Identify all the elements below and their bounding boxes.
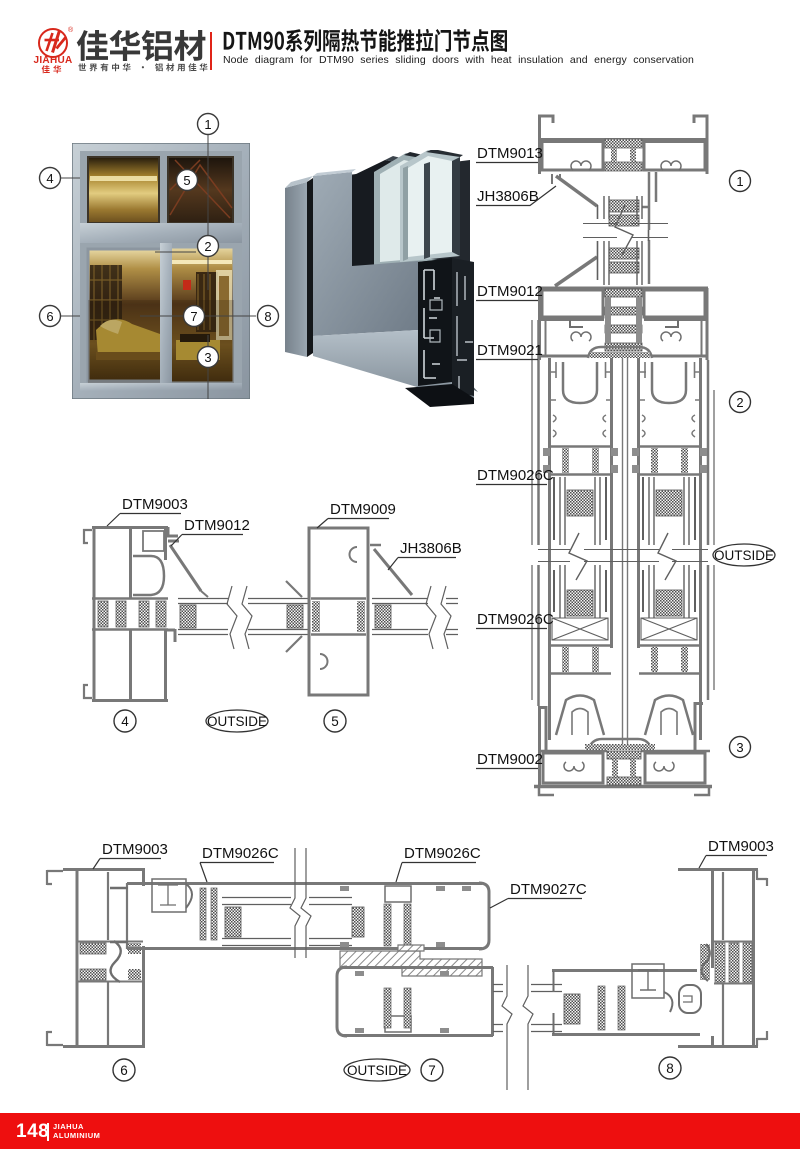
svg-text:6: 6 [46, 309, 53, 324]
svg-text:DTM9002: DTM9002 [477, 751, 543, 768]
svg-text:DTM9013: DTM9013 [477, 145, 543, 162]
svg-text:5: 5 [183, 173, 190, 188]
svg-text:5: 5 [331, 714, 339, 729]
svg-text:JH3806B: JH3806B [477, 188, 539, 205]
svg-text:®: ® [68, 26, 74, 34]
svg-text:8: 8 [264, 309, 271, 324]
svg-text:7: 7 [190, 309, 197, 324]
svg-text:DTM9026C: DTM9026C [477, 611, 554, 628]
svg-text:4: 4 [46, 171, 53, 186]
svg-text:DTM9009: DTM9009 [330, 501, 396, 518]
svg-text:3: 3 [736, 740, 743, 755]
svg-text:DTM9026C: DTM9026C [202, 845, 279, 862]
svg-text:JH3806B: JH3806B [400, 540, 462, 557]
svg-text:DTM9003: DTM9003 [708, 838, 774, 855]
svg-text:DTM9027C: DTM9027C [510, 881, 587, 898]
svg-text:1: 1 [204, 117, 211, 132]
svg-text:DTM9003: DTM9003 [122, 496, 188, 513]
svg-text:JIAHUA: JIAHUA [33, 55, 72, 66]
svg-text:OUTSIDE: OUTSIDE [207, 714, 267, 729]
svg-text:DTM9012: DTM9012 [477, 283, 543, 300]
svg-text:6: 6 [120, 1063, 128, 1078]
svg-text:DTM9026C: DTM9026C [477, 467, 554, 484]
svg-text:2: 2 [204, 239, 211, 254]
svg-text:DTM9026C: DTM9026C [404, 845, 481, 862]
svg-text:1: 1 [736, 174, 743, 189]
svg-text:3: 3 [204, 350, 211, 365]
svg-text:OUTSIDE: OUTSIDE [714, 548, 774, 563]
svg-text:7: 7 [428, 1063, 436, 1078]
svg-text:8: 8 [666, 1061, 674, 1076]
svg-text:DTM9012: DTM9012 [184, 517, 250, 534]
svg-text:4: 4 [121, 714, 129, 729]
svg-text:OUTSIDE: OUTSIDE [347, 1063, 407, 1078]
svg-text:2: 2 [736, 395, 743, 410]
svg-text:DTM9021: DTM9021 [477, 342, 543, 359]
svg-text:DTM9003: DTM9003 [102, 841, 168, 858]
